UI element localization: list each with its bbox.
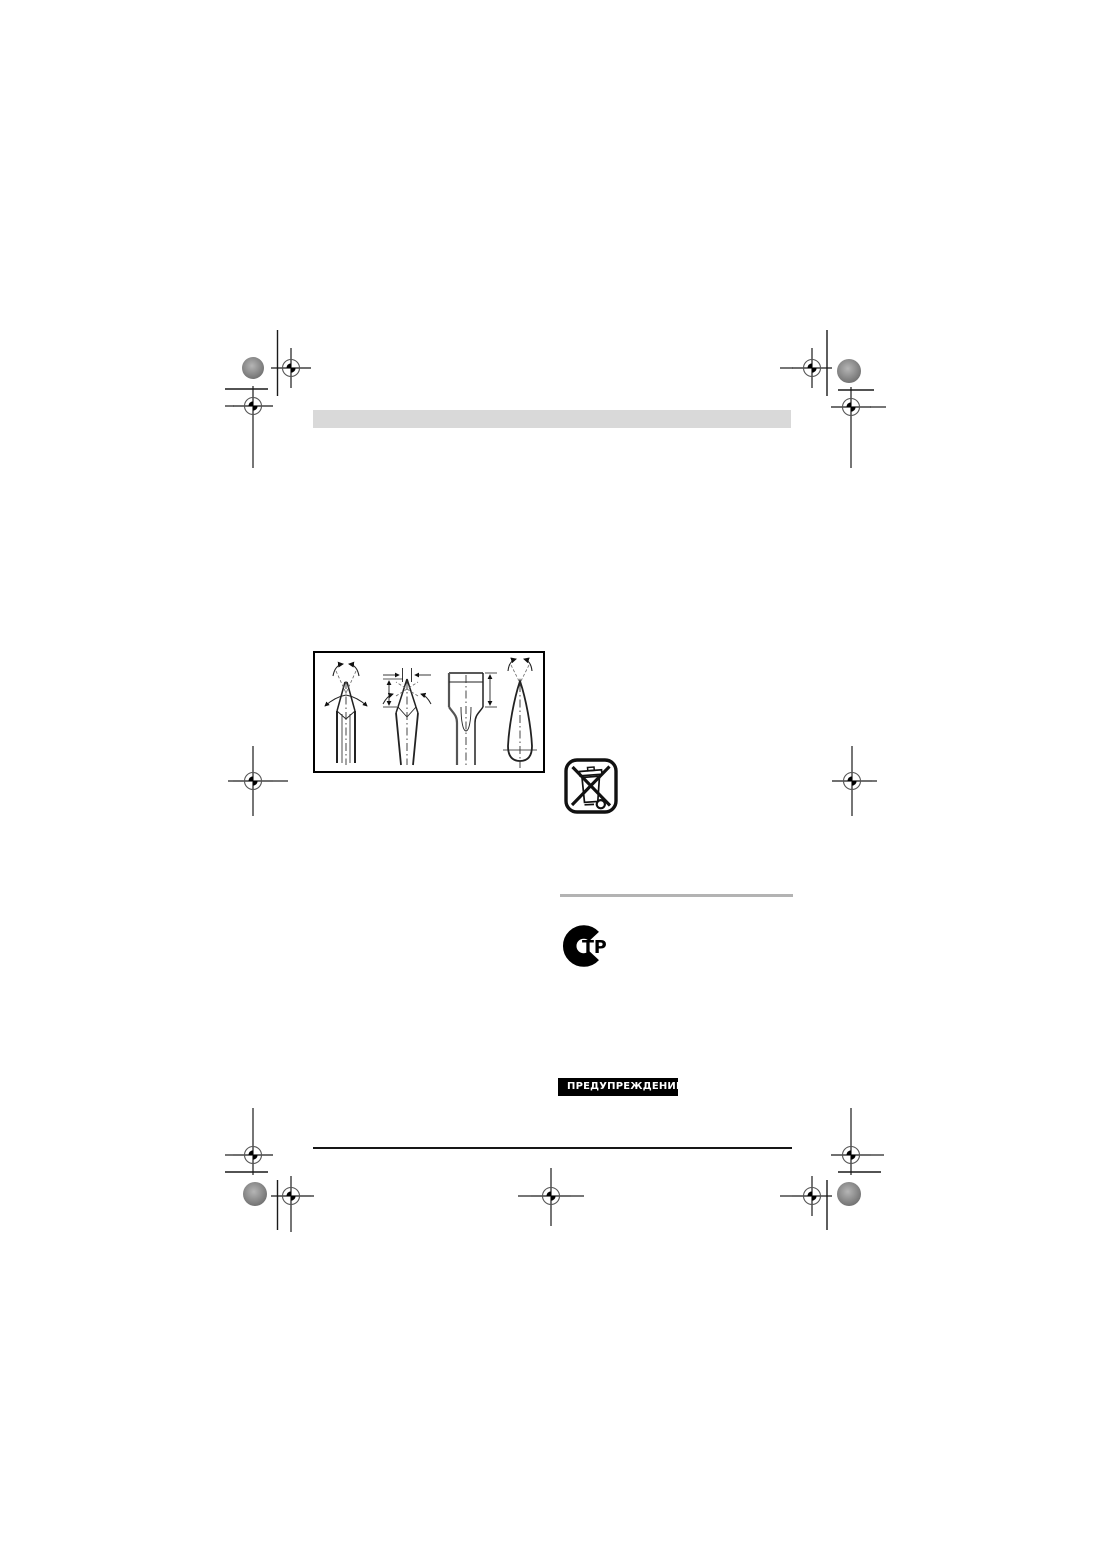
warning-label: ПРЕДУПРЕЖДЕНИЕ: [558, 1078, 678, 1096]
crop-marks-bottom-right: [780, 1108, 884, 1230]
registration-target-icon: [271, 348, 311, 388]
registration-target-icon: [831, 1135, 871, 1175]
halftone-dot-icon: [243, 1182, 267, 1206]
crop-marks-top-right: [780, 330, 886, 468]
registration-target-icon: [233, 386, 273, 426]
registration-target-icon: [531, 1176, 571, 1216]
manual-page: ТР ПРЕДУПРЕЖДЕНИЕ: [0, 0, 1106, 1564]
section-divider: [560, 894, 793, 897]
certification-label: ТР: [582, 938, 607, 958]
crop-marks-bottom-center: [518, 1168, 584, 1226]
halftone-dot-icon: [242, 357, 264, 379]
crossed-out-wheeled-bin-icon: [564, 758, 618, 814]
halftone-dot-icon: [837, 359, 861, 383]
rostest-str-certification-icon: ТР: [562, 922, 616, 972]
print-marks-overlay: [0, 0, 1106, 1564]
certification-dot: [588, 930, 593, 935]
registration-target-icon: [792, 348, 832, 388]
warning-label-text: ПРЕДУПРЕЖДЕНИЕ: [567, 1078, 683, 1096]
header-bar: [313, 410, 791, 428]
registration-target-icon: [792, 1176, 832, 1216]
registration-target-icon: [233, 1135, 273, 1175]
chisel-sharpening-diagram: [313, 651, 545, 773]
halftone-dot-icon: [837, 1182, 861, 1206]
registration-target-icon: [832, 761, 872, 801]
footer-rule: [313, 1147, 792, 1149]
registration-target-icon: [271, 1176, 311, 1216]
crop-marks-top-left: [225, 330, 311, 468]
registration-target-icon: [831, 387, 871, 427]
registration-target-icon: [233, 761, 273, 801]
crop-marks-bottom-left: [225, 1108, 314, 1232]
